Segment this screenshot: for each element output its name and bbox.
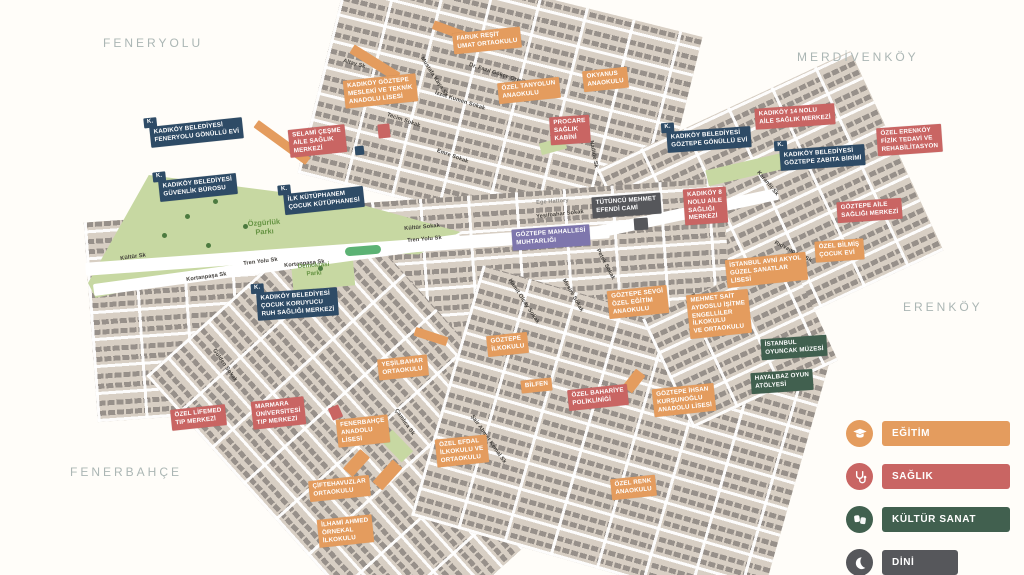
- stethoscope-icon: [846, 463, 873, 490]
- legend-label-saglik: SAĞLIK: [882, 464, 1010, 489]
- poi-kadikoy-belediyesi-feneryolu-gonullu-evi: K.KADIKÖY BELEDİYESİFENERYOLU GÖNÜLLÜ EV…: [149, 117, 244, 147]
- poi-label-line: ÇOCUK EVİ: [819, 248, 860, 259]
- poi-ozel-erenkoy-fizik-tedavi-ve-rehabilitasyon: ÖZEL ERENKÖYFİZİK TEDAVİ VEREHABİLİTASYO…: [876, 124, 942, 157]
- poi-kadikoy-belediyesi-cocuk-koruyucu-ruh-sagligi-merkezi: K.KADIKÖY BELEDİYESİÇOCUK KORUYUCURUH SA…: [256, 287, 339, 321]
- goztepe-neighborhood-map: Kültür SokakTren Yolu SkKültür SkTren Yo…: [0, 0, 1024, 575]
- legend-item-kultur-sanat: KÜLTÜR SANAT: [846, 506, 1010, 533]
- district-name-fenerbahce: FENERBAHÇE: [70, 465, 182, 479]
- poi-procare-saglik-kabini: PROCARESAĞLIKKABİNİ: [549, 115, 591, 146]
- clinic-building-marker: [377, 123, 390, 138]
- legend-item-saglik: SAĞLIK: [846, 463, 1010, 490]
- kadikoy-municipality-logo-tab: K.: [143, 117, 157, 128]
- district-name-erenkoy: ERENKÖY: [903, 300, 983, 314]
- ozgurluk-parki-label: ÖzgürlükParkı: [247, 217, 281, 238]
- legend-item-egitim: EĞİTİM: [846, 420, 1010, 447]
- legend-label-dini: DİNİ: [882, 550, 958, 575]
- mosque-building-marker: [634, 218, 649, 231]
- poi-ozel-bilmis-cocuk-evi: ÖZEL BİLMİŞÇOCUK EVİ: [814, 238, 864, 262]
- kadikoy-municipality-logo-tab: K.: [277, 184, 291, 195]
- theater-masks-icon: [846, 506, 873, 533]
- poi-label-line: BİLFEN: [525, 380, 549, 390]
- legend-label-kultur-sanat: KÜLTÜR SANAT: [882, 507, 1010, 532]
- poi-mehmet-sait-aydoslu-isitme-engelliler-ilkokulu-ve-ortaokulu: MEHMET SAİTAYDOSLU İŞİTMEENGELLİLERİLKOK…: [686, 289, 752, 339]
- kadikoy-municipality-logo-tab: K.: [152, 171, 166, 182]
- kadikoy-municipality-logo-tab: K.: [774, 140, 788, 151]
- kadikoy-municipality-logo-tab: K.: [250, 283, 264, 294]
- district-name-merdivenkoy: MERDİVENKÖY: [797, 50, 919, 64]
- graduation-cap-icon: [846, 420, 873, 447]
- demokrasi-parki-label: DemokrasiParkı: [297, 261, 330, 279]
- legend-label-egitim: EĞİTİM: [882, 421, 1010, 446]
- tree-icon: [206, 243, 211, 248]
- poi-ozel-efdal-ilkokulu-ve-ortaokulu: ÖZEL EFDALİLKOKULU VEORTAOKULU: [435, 434, 489, 467]
- poi-hayalbaz-oyun-atolyesi: HAYALBAZ OYUNATÖLYESİ: [750, 369, 814, 394]
- poi-label-line: KABİNİ: [554, 132, 586, 142]
- district-name-feneryolu: FENERYOLU: [103, 36, 203, 50]
- municipal-building-marker: [355, 146, 365, 156]
- poi-label-line: MERKEZİ: [689, 212, 724, 222]
- tree-icon: [213, 199, 218, 204]
- poi-fenerbahce-anadolu-lisesi: FENERBAHÇEANADOLULİSESİ: [336, 414, 391, 448]
- tree-icon: [162, 233, 167, 238]
- crescent-icon: [846, 549, 873, 575]
- poi-goztepe-ilkokulu: GÖZTEPEİLKOKULU: [486, 332, 529, 357]
- kadikoy-municipality-logo-tab: K.: [661, 122, 675, 133]
- poi-kadikoy-8-nolu-aile-sagligi-merkezi: KADIKÖY 8NOLU AİLESAĞLIĞIMERKEZİ: [683, 187, 728, 226]
- tree-icon: [185, 214, 190, 219]
- poi-marmara-universitesi-tip-merkezi: MARMARAÜNİVERSİTESİTIP MERKEZİ: [251, 396, 306, 430]
- map-legend: EĞİTİMSAĞLIKKÜLTÜR SANATDİNİ: [846, 420, 1010, 575]
- legend-item-dini: DİNİ: [846, 549, 1010, 575]
